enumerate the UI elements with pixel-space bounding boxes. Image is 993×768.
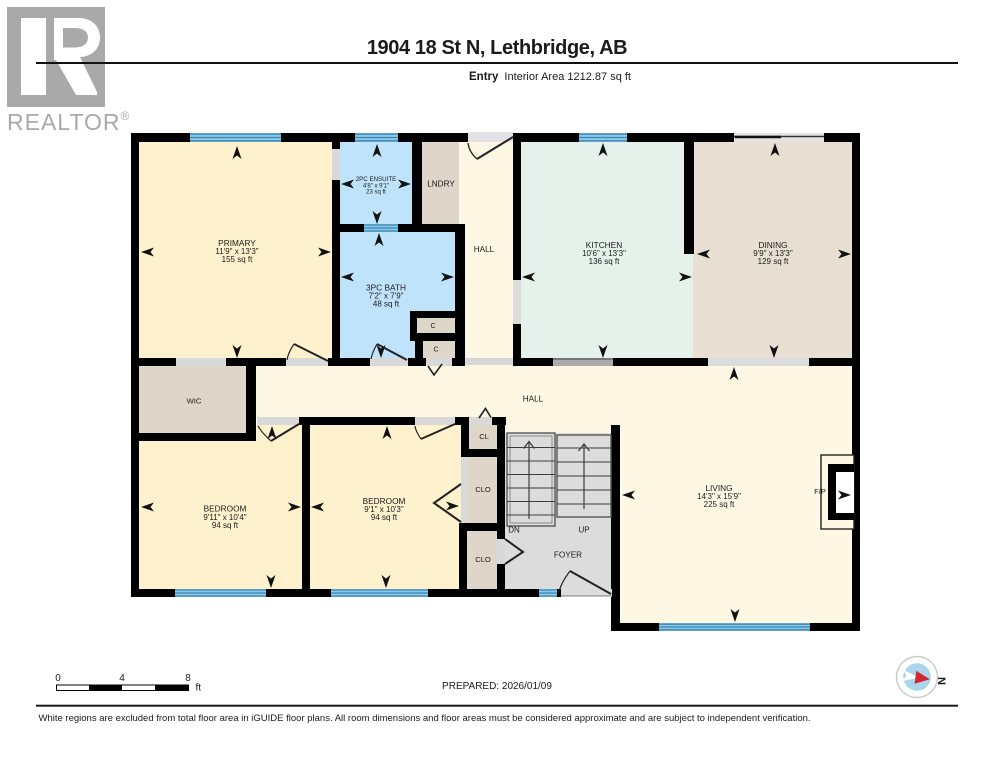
svg-text:UP: UP: [578, 526, 589, 535]
svg-text:1904 18 St N, Lethbridge, AB: 1904 18 St N, Lethbridge, AB: [367, 37, 627, 59]
svg-text:23 sq ft: 23 sq ft: [366, 190, 386, 196]
svg-text:HALL: HALL: [474, 245, 495, 254]
svg-text:4'8" x 9'1": 4'8" x 9'1": [363, 183, 389, 189]
svg-text:C: C: [433, 347, 438, 354]
svg-text:94 sq ft: 94 sq ft: [371, 513, 398, 522]
svg-text:94 sq ft: 94 sq ft: [212, 521, 239, 530]
svg-text:4: 4: [119, 673, 125, 684]
svg-text:HALL: HALL: [523, 395, 544, 404]
svg-text:155 sq ft: 155 sq ft: [222, 255, 253, 264]
svg-text:White regions are excluded fro: White regions are excluded from total fl…: [39, 713, 811, 724]
svg-text:LNDRY: LNDRY: [427, 180, 455, 189]
svg-text:REALTOR®: REALTOR®: [7, 109, 130, 135]
svg-text:DN: DN: [508, 526, 520, 535]
svg-text:CLO: CLO: [475, 485, 491, 494]
svg-text:PREPARED: 2026/01/09: PREPARED: 2026/01/09: [442, 681, 552, 692]
svg-text:EntryInterior Area 1212.87 sq: EntryInterior Area 1212.87 sq ft: [469, 71, 631, 83]
svg-text:CL: CL: [479, 432, 489, 441]
svg-text:CLO: CLO: [475, 555, 491, 564]
svg-text:48 sq ft: 48 sq ft: [373, 300, 400, 309]
svg-text:WIC: WIC: [187, 396, 202, 405]
svg-text:ft: ft: [196, 683, 202, 694]
svg-text:C: C: [430, 323, 435, 330]
svg-text:136 sq ft: 136 sq ft: [589, 257, 620, 266]
svg-text:N: N: [935, 677, 947, 685]
svg-text:FOYER: FOYER: [554, 551, 582, 560]
svg-text:225 sq ft: 225 sq ft: [704, 500, 735, 509]
svg-text:129 sq ft: 129 sq ft: [758, 257, 789, 266]
svg-text:F/P: F/P: [814, 487, 826, 496]
svg-text:0: 0: [55, 673, 61, 684]
svg-text:8: 8: [185, 673, 191, 684]
svg-text:2PC ENSUITE: 2PC ENSUITE: [356, 176, 397, 183]
